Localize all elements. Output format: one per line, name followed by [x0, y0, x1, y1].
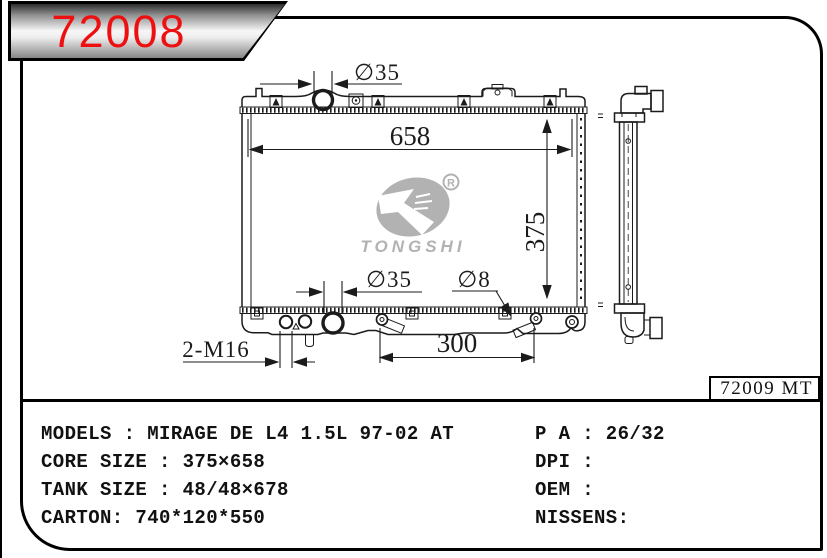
radiator-side-view [598, 87, 663, 344]
side-top-elbow [621, 94, 651, 114]
spec-models: MODELS : MIRAGE DE L4 1.5L 97-02 AT [41, 423, 535, 445]
right-end-fitting [566, 316, 578, 328]
side-top-header [615, 113, 645, 122]
spec-dpi: DPI : [535, 451, 823, 473]
banner-face: 72008 [11, 4, 285, 58]
top-core-strip [240, 107, 587, 114]
oil-pipe-left [377, 314, 405, 333]
dim-pipe-span-label: 300 [437, 328, 478, 358]
bottom-outlet-neck [323, 313, 343, 333]
dimension-core-width: 658 [248, 119, 572, 157]
dim-core-width-label: 658 [390, 121, 431, 151]
spec-nissens: NISSENS: [535, 507, 823, 529]
spec-pa: P A : 26/32 [535, 423, 823, 445]
reference-code: 72009 MT [720, 378, 813, 400]
side-bottom-elbow [621, 313, 644, 337]
spec-tank-size: TANK SIZE : 48/48×678 [41, 479, 535, 501]
dim-pipe-label: ∅8 [457, 267, 491, 292]
catalog-page: R TONGSHI [0, 0, 827, 558]
spec-oem: OEM : [535, 479, 823, 501]
spec-core-size: CORE SIZE : 375×658 [41, 451, 535, 473]
dimension-bottom-neck: ∅35 [296, 267, 422, 313]
dimension-top-neck: ∅35 [260, 60, 402, 95]
bottom-tab [306, 334, 314, 347]
dim-top-neck-label: ∅35 [354, 60, 400, 85]
side-inlet-pipe [651, 91, 663, 112]
part-number-banner: 72008 [8, 1, 288, 61]
dimension-core-height: 375 [520, 120, 550, 298]
radiator-cap [483, 85, 512, 97]
dim-core-height-label: 375 [520, 212, 550, 253]
dimension-pipe-span: 300 [380, 328, 534, 363]
reference-code-box: 72009 MT [709, 376, 820, 402]
dimension-drain-thread: 2-M16 [182, 331, 315, 368]
part-number: 72008 [51, 9, 186, 54]
spec-table: MODELS : MIRAGE DE L4 1.5L 97-02 AT P A … [41, 420, 823, 532]
side-outlet-pipe [650, 318, 662, 339]
top-tank-outline [242, 89, 585, 108]
dim-drain-label: 2-M16 [182, 337, 250, 362]
drain-bosses-m16 [280, 315, 311, 329]
tongshi-watermark-logo: R TONGSHI [360, 170, 465, 256]
watermark-brand-text: TONGSHI [360, 237, 465, 256]
side-bottom-header [615, 304, 645, 313]
fin-section-marks [598, 114, 603, 307]
registered-trademark-letter: R [447, 178, 455, 190]
dim-bottom-neck-label: ∅35 [366, 267, 412, 292]
spec-carton: CARTON: 740*120*550 [41, 507, 535, 529]
